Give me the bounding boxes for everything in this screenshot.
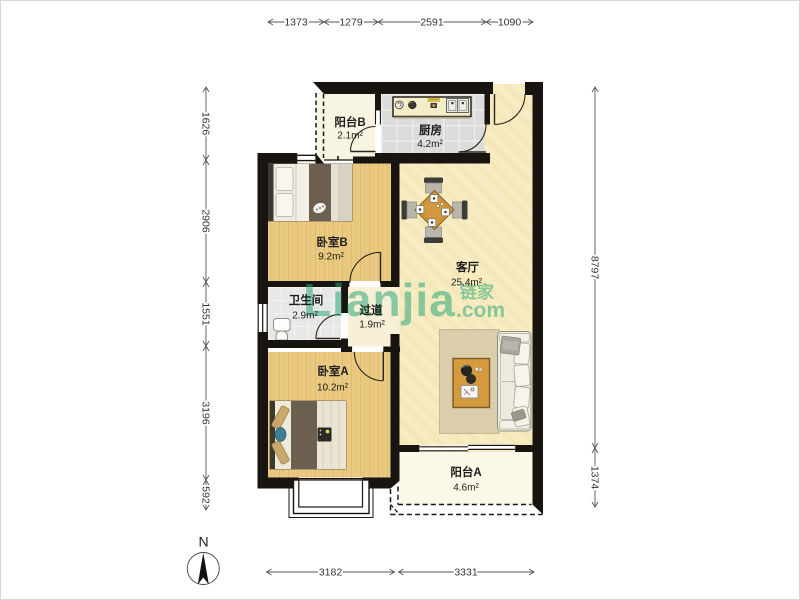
svg-text:1373: 1373 bbox=[284, 17, 308, 29]
svg-text:.com: .com bbox=[456, 299, 505, 322]
svg-text:9.2m²: 9.2m² bbox=[318, 252, 344, 263]
svg-text:1.9m²: 1.9m² bbox=[359, 320, 385, 331]
svg-text:厨房: 厨房 bbox=[419, 123, 442, 137]
svg-text:过道: 过道 bbox=[360, 303, 383, 317]
svg-text:Lianjia: Lianjia bbox=[303, 274, 456, 326]
svg-text:8797: 8797 bbox=[589, 256, 601, 280]
svg-text:卫生间: 卫生间 bbox=[289, 293, 324, 307]
svg-text:客厅: 客厅 bbox=[455, 260, 479, 274]
svg-text:1090: 1090 bbox=[498, 17, 522, 29]
svg-text:1626: 1626 bbox=[200, 112, 212, 136]
svg-text:卧室B: 卧室B bbox=[316, 235, 347, 249]
svg-text:2591: 2591 bbox=[420, 17, 444, 29]
svg-text:2.1m²: 2.1m² bbox=[337, 131, 363, 142]
svg-text:3182: 3182 bbox=[319, 567, 343, 579]
svg-text:4.2m²: 4.2m² bbox=[417, 139, 443, 150]
svg-text:25.4m²: 25.4m² bbox=[451, 278, 483, 289]
svg-text:1551: 1551 bbox=[200, 302, 212, 326]
svg-text:阳台B: 阳台B bbox=[334, 115, 365, 129]
svg-text:2.9m²: 2.9m² bbox=[292, 311, 318, 322]
svg-text:1374: 1374 bbox=[589, 466, 601, 490]
svg-text:4.6m²: 4.6m² bbox=[453, 483, 479, 494]
svg-text:阳台A: 阳台A bbox=[450, 465, 481, 479]
svg-text:3196: 3196 bbox=[200, 401, 212, 425]
svg-text:卧室A: 卧室A bbox=[317, 364, 348, 378]
svg-text:2906: 2906 bbox=[200, 209, 212, 233]
svg-text:10.2m²: 10.2m² bbox=[317, 383, 349, 394]
svg-text:1279: 1279 bbox=[339, 17, 363, 29]
svg-text:3331: 3331 bbox=[454, 567, 478, 579]
svg-text:592: 592 bbox=[200, 486, 212, 504]
svg-text:N: N bbox=[198, 534, 208, 550]
